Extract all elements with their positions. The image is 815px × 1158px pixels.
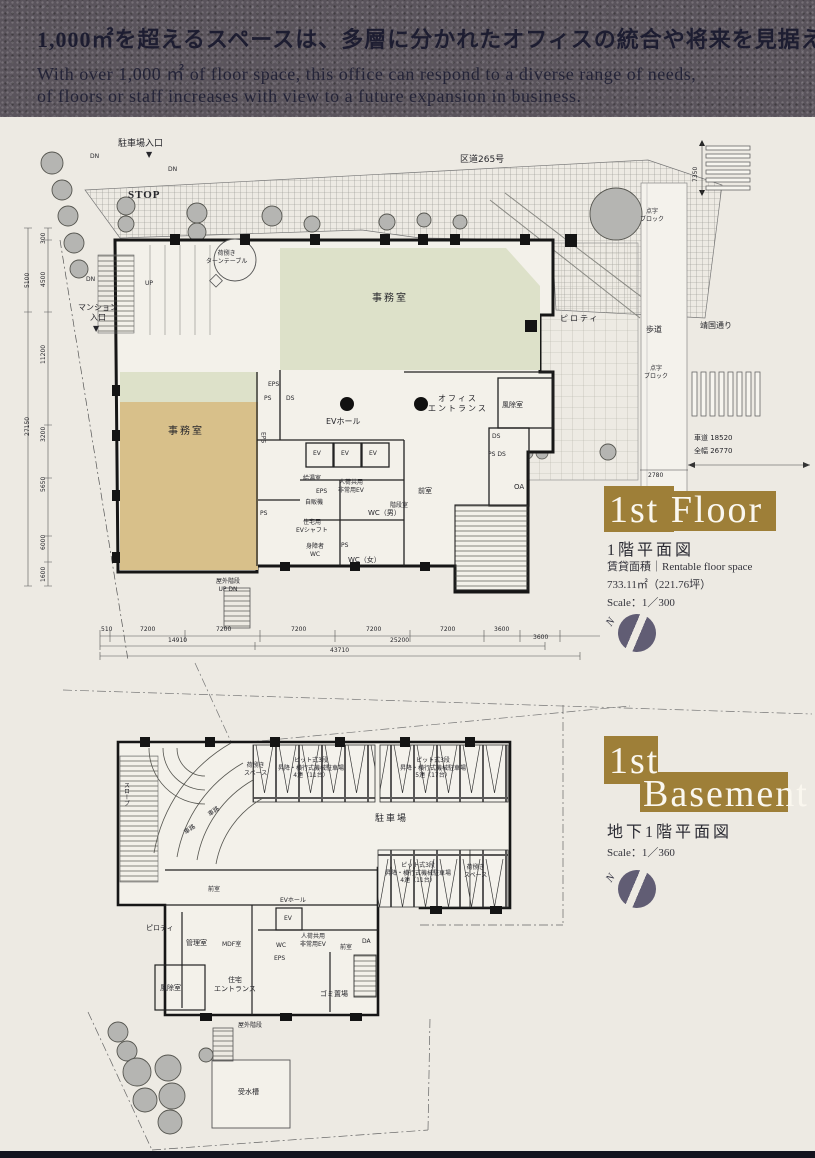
- scale-label: Scale：1／300: [607, 594, 675, 610]
- dim-7200: 7200: [440, 626, 455, 634]
- scale-label: Scale：1／360: [607, 844, 675, 860]
- label-oa: OA: [514, 483, 524, 492]
- label-loading-space: 荷捌き スペース: [464, 864, 487, 879]
- dim-7200: 7200: [216, 626, 231, 634]
- label-ev: EV: [313, 450, 321, 458]
- dim-510: 510: [101, 626, 112, 634]
- label-mdf-room: MDF室: [222, 941, 241, 949]
- label-parking-entrance: 駐車場入口: [118, 139, 163, 150]
- label-ev: EV: [369, 450, 377, 458]
- label-windbreak: 風除室: [502, 401, 523, 410]
- label-wc-men: WC（男）: [368, 509, 401, 518]
- label-da: DA: [362, 938, 371, 946]
- label-pit-parking-b: ピット式3段 昇降・横行式機械駐車場 5連（17台）: [400, 757, 466, 780]
- basement-title-jp: 地下1階平面図: [607, 818, 732, 842]
- label-ds: DS: [492, 433, 500, 441]
- label-parking: 駐車場: [375, 814, 408, 825]
- label-ps: PS: [264, 395, 271, 403]
- north-compass-icon: [618, 614, 656, 652]
- label-sidewalk: 歩道: [646, 325, 662, 335]
- label-water-tank: 受水槽: [238, 1088, 259, 1097]
- dim-25200: 25200: [390, 637, 409, 645]
- rentable-area-label: 賃貸面積｜Rentable floor space: [607, 558, 752, 574]
- label-turntable: 荷捌き ターンテーブル: [206, 250, 247, 265]
- label-ps-ds: PS DS: [488, 451, 506, 459]
- label-stairwell: 階段室: [390, 502, 408, 510]
- brochure-page: 1,000㎡を超えるスペースは、多層に分かれたオフィスの統合や将来を見据えた W…: [0, 0, 815, 1158]
- label-ev: EV: [341, 450, 349, 458]
- dim-3600: 3600: [494, 626, 509, 634]
- dim-43710: 43710: [330, 647, 349, 655]
- label-braille-block: 点字 ブロック: [640, 208, 664, 223]
- label-outdoor-stair: 屋外階段: [238, 1022, 262, 1030]
- label-slope: スロープ: [122, 782, 130, 806]
- label-stop: STOP: [128, 189, 161, 203]
- dim-5650: 5650: [40, 477, 48, 492]
- floor1-title: 1st Floor: [609, 488, 763, 532]
- label-manager-room: 管理室: [186, 939, 207, 948]
- label-piloti: ピロティ: [146, 924, 174, 933]
- label-office-a: 事務室: [372, 293, 408, 306]
- label-roadway-width: 車道 18520: [694, 434, 733, 443]
- arrow-down-icon: ▼: [146, 150, 152, 160]
- label-loading-space: 荷捌き スペース: [244, 762, 267, 777]
- label-office-entrance: オフィス エントランス: [428, 394, 488, 414]
- label-ps: PS: [260, 510, 267, 518]
- rentable-area-value: 733.11㎡（221.76坪）: [607, 576, 711, 592]
- label-wc-handicap: 身障者 WC: [306, 543, 324, 558]
- label-braille-block: 点字 ブロック: [644, 365, 668, 380]
- label-garbage: ゴミ置場: [320, 990, 348, 999]
- dim-27150: 27150: [24, 417, 32, 436]
- label-vending: 自販機: [305, 499, 323, 507]
- label-ps: PS: [341, 542, 348, 550]
- label-office-b: 事務室: [168, 426, 204, 439]
- dim-2780: 2780: [648, 472, 663, 480]
- dim-3600: 3600: [533, 634, 548, 642]
- label-full-width: 全幅 26770: [694, 447, 733, 456]
- label-yasukuni-street: 靖国通り: [700, 321, 732, 331]
- dim-7200: 7200: [366, 626, 381, 634]
- label-ev-hall: EVホール: [326, 417, 361, 427]
- dim-11200: 11200: [40, 345, 48, 364]
- label-dn: DN: [90, 153, 99, 161]
- label-ward-road: 区道265号: [460, 155, 504, 166]
- label-wc-women: WC（女）: [348, 556, 381, 565]
- label-eps: EPS: [316, 488, 327, 496]
- arrow-down-icon: ▼: [93, 324, 99, 334]
- label-res-entrance: 住宅 エントランス: [214, 976, 256, 994]
- label-service-ev: 人荷共用 非常用EV: [300, 933, 326, 948]
- label-ev: EV: [284, 915, 292, 923]
- dim-5100: 5100: [24, 273, 32, 288]
- north-compass-icon: [618, 870, 656, 908]
- dim-3200: 3200: [40, 427, 48, 442]
- dim-6000: 6000: [40, 535, 48, 550]
- label-mansion-entrance: マンション 入口: [78, 303, 118, 323]
- basement-title-2: Basement: [643, 772, 809, 816]
- footer-bar: [0, 1151, 815, 1158]
- dim-300: 300: [40, 233, 48, 244]
- label-anteroom: 前室: [208, 886, 220, 894]
- label-eps: EPS: [259, 432, 267, 443]
- dim-14910: 14910: [168, 637, 187, 645]
- dim-7350: 7350: [692, 167, 700, 182]
- label-kitchenette: 給湯室: [303, 475, 321, 483]
- label-service-ev: 人荷共用 非常用EV: [338, 479, 364, 494]
- label-eps: EPS: [274, 955, 285, 963]
- label-eps: EPS: [268, 381, 279, 389]
- dim-4500: 4500: [40, 272, 48, 287]
- label-anteroom: 前室: [340, 944, 352, 952]
- dim-1600: 1600: [40, 567, 48, 582]
- label-wc: WC: [276, 942, 286, 950]
- label-up: UP: [145, 280, 153, 288]
- label-dn: DN: [168, 166, 177, 174]
- label-res-ev-shaft: 住宅用 EVシャフト: [296, 519, 328, 534]
- label-pit-parking-a: ピット式3段 昇降・横行式機械駐車場 4連（11台）: [278, 757, 344, 780]
- floor1-title-jp: 1階平面図: [607, 536, 694, 560]
- label-windbreak: 風除室: [160, 984, 181, 993]
- label-outdoor-stair: 屋外階段 UP DN: [216, 578, 240, 593]
- label-dn: DN: [86, 276, 95, 284]
- label-pit-parking-a2: ピット式3段 昇降・横行式機械駐車場 4連（11台）: [385, 862, 451, 885]
- label-ds: DS: [286, 395, 294, 403]
- label-anteroom: 前室: [418, 487, 432, 496]
- label-ev-hall: EVホール: [280, 897, 306, 905]
- dim-7200: 7200: [291, 626, 306, 634]
- label-piloti: ピロティ: [560, 314, 600, 324]
- dim-7200: 7200: [140, 626, 155, 634]
